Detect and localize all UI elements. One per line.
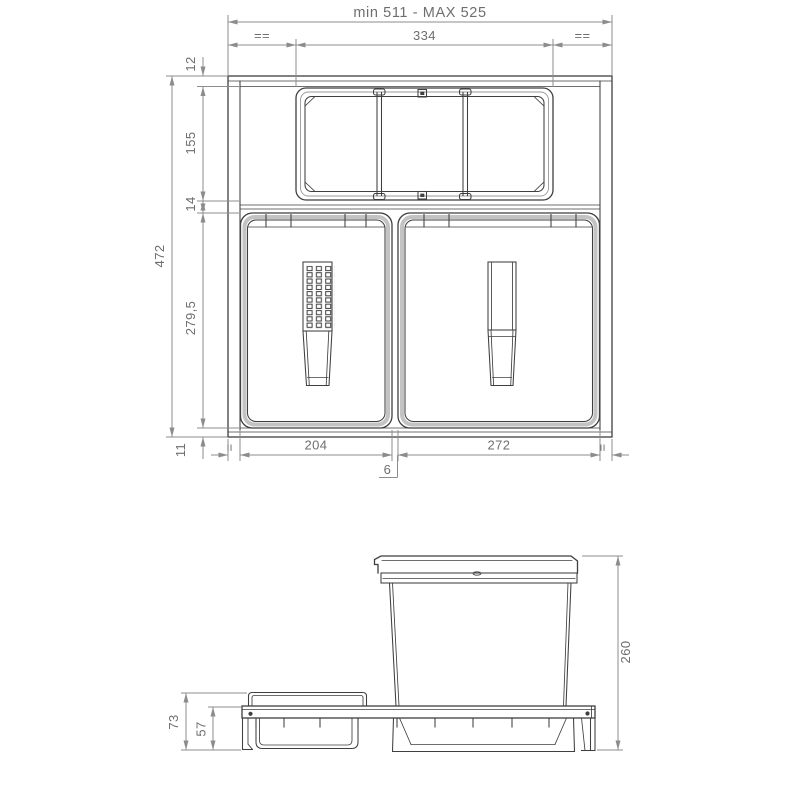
bin-lid <box>375 556 578 573</box>
dim-tray-depth: 155 <box>183 132 198 155</box>
top-view: min 511 - MAX 525 == 334 == 472 12 155 <box>152 5 629 478</box>
dim-tray-unit-height: 73 <box>166 714 181 729</box>
dim-overall-width: min 511 - MAX 525 <box>353 5 486 21</box>
handle-right-plate <box>488 262 516 330</box>
dim-bins-gap: 6 <box>384 462 392 477</box>
handle-left <box>303 262 334 386</box>
tray-clip <box>418 192 427 200</box>
bin-side <box>375 556 578 706</box>
dim-bin-left-width: 204 <box>305 438 328 453</box>
bin-rim <box>381 573 577 583</box>
tray-side-body <box>256 718 358 749</box>
top-tray <box>296 88 553 200</box>
dim-equal-bottom-left: = <box>222 444 237 452</box>
tray-outline <box>296 88 553 200</box>
base-plate-frame <box>228 76 612 437</box>
dimensions-side-view: 260 73 57 <box>166 556 633 750</box>
dim-equal-top-left: == <box>254 28 270 43</box>
dim-rail-height: 57 <box>194 721 209 736</box>
handle-right <box>488 262 516 386</box>
dim-tray-width: 334 <box>413 28 436 43</box>
dim-equal-bottom-right: = <box>595 444 610 452</box>
frame-outline <box>228 76 612 437</box>
bin-right-outline <box>398 213 600 428</box>
rail-screw <box>248 712 252 716</box>
rail-bar <box>242 706 595 718</box>
tray-divider <box>374 89 386 200</box>
dim-front-gap: 12 <box>183 56 198 71</box>
dim-bin-right-width: 272 <box>488 438 511 453</box>
bin-left <box>241 213 393 428</box>
dim-overall-depth: 472 <box>152 245 167 268</box>
tray-clip <box>418 90 427 98</box>
dim-middle-gap: 14 <box>183 196 198 211</box>
tray-divider <box>460 89 472 200</box>
side-view: 260 73 57 <box>166 556 633 752</box>
tray-side-rim <box>249 693 367 707</box>
drawing-page: min 511 - MAX 525 == 334 == 472 12 155 <box>0 0 800 800</box>
bin-right <box>398 213 600 428</box>
dim-bins-depth: 279,5 <box>183 301 198 336</box>
technical-drawing: min 511 - MAX 525 == 334 == 472 12 155 <box>0 0 800 800</box>
dim-equal-top-right: == <box>575 28 591 43</box>
rail-right-foot <box>582 718 596 751</box>
dim-bin-height: 260 <box>618 641 633 664</box>
rail-left-foot <box>243 718 253 750</box>
pull-out-rail <box>242 706 595 751</box>
handle-left-perforation-grid <box>307 266 335 329</box>
rail-screw <box>585 711 589 715</box>
tray-side <box>249 693 367 749</box>
dim-rear-gap: 11 <box>173 443 188 457</box>
bin-body <box>390 583 572 706</box>
bin-base <box>393 718 575 752</box>
